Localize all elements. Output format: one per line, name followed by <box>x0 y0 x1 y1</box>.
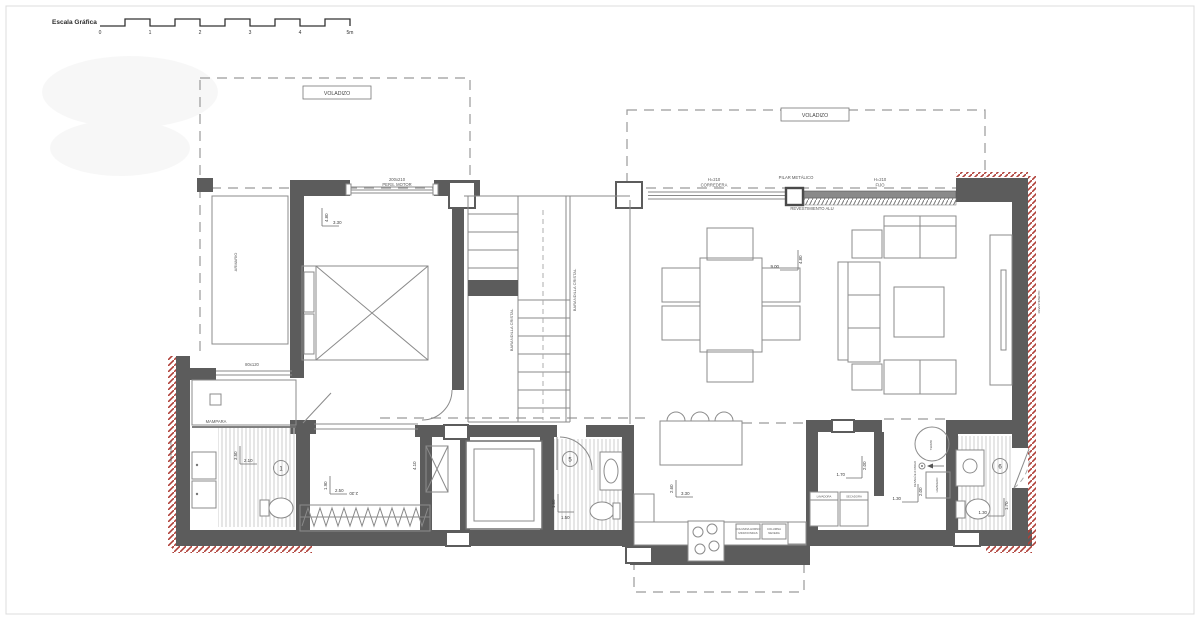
bath-guest-height-dim: 1.50 <box>551 499 556 508</box>
sink <box>192 481 216 508</box>
bedroom: ARMARIO 4.80 3.30 <box>212 196 452 429</box>
stair-landing <box>468 280 518 296</box>
living-area: 4.80 9.00 <box>770 216 1012 394</box>
voladizo-outline-left: VOLADIZO <box>197 78 470 356</box>
voladizo-label-right: VOLADIZO <box>802 113 828 119</box>
scale-tick-5: 5m <box>347 30 354 36</box>
bath-right-width-dim: 1.30 <box>978 510 987 515</box>
terrace-pillar <box>197 178 213 192</box>
living-width-dim: 9.00 <box>770 264 779 269</box>
washer: LAVADORA <box>810 492 838 526</box>
dining-area <box>662 228 800 382</box>
glass-railing-label-2: BARANDILLA CRISTAL <box>572 268 577 311</box>
utility-basin-label: LAVADERO <box>935 477 939 493</box>
bedroom-height-dim: 4.80 <box>324 213 329 222</box>
fixed-window-height-label: H=210 <box>874 177 887 182</box>
fixed-window: H=210 FIJO REVESTIMIENTO ALU <box>790 177 956 211</box>
water-heater: TERMO <box>915 427 949 461</box>
bath-window-size-label: 80x120 <box>245 362 259 367</box>
dressing-alt-dim: 2.30 <box>349 491 358 496</box>
dressing-height-dim: 1.90 <box>323 481 328 490</box>
bath-guest-width-dim: 1.50 <box>561 515 570 520</box>
laundry-height-dim: 2.00 <box>862 461 867 470</box>
bath-main-height-dim: 3.50 <box>233 451 238 460</box>
cladding-label-left: REVESTIMIENTO <box>169 440 173 464</box>
kitchen: 2.60 3.30 COLUMNA HORNO MICROONDAS COLUM… <box>634 412 806 561</box>
dining-chair <box>707 228 753 260</box>
watermark <box>42 56 218 176</box>
dining-chair <box>762 306 800 340</box>
dining-table <box>700 258 762 352</box>
glass-railing-label-1: BARANDILLA CRISTAL <box>509 308 514 351</box>
kitchen-width-dim: 3.30 <box>681 491 690 496</box>
bed <box>302 266 428 360</box>
kitchen-cabinet <box>634 494 654 522</box>
living-height-dim: 4.80 <box>798 255 803 264</box>
bedroom-window: 200x210 PERS. MOTOR <box>346 177 438 195</box>
fridge-column-label-2: NEVERA <box>768 531 780 535</box>
scale-bar-label: Escala Gráfica <box>52 19 97 26</box>
tv-cabinet <box>990 235 1012 385</box>
laundry-dimension: 2.00 1.70 <box>836 456 867 478</box>
scale-tick-4: 4 <box>299 30 302 36</box>
cooktop <box>688 521 724 561</box>
sink <box>192 452 216 479</box>
dryer: SECADORA <box>840 492 868 526</box>
sliding-window-type-label: CORREDERA <box>701 183 728 188</box>
dining-chair <box>707 350 753 382</box>
dining-chair <box>762 268 800 302</box>
scale-bar: Escala Gráfica 0 1 2 3 4 5m <box>52 19 353 36</box>
drain-symbol <box>919 463 944 469</box>
sink <box>600 452 622 490</box>
drain-label: DESAGÜE A PARED <box>913 461 917 487</box>
dining-chair <box>662 306 700 340</box>
wardrobe <box>300 505 430 531</box>
dressing-dimension: 1.90 2.50 2.30 <box>323 476 358 496</box>
voladizo-label-left: VOLADIZO <box>324 91 350 97</box>
coffee-table <box>894 287 944 337</box>
floor-plan-drawing: Escala Gráfica 0 1 2 3 4 5m VOLADIZO VOL… <box>0 0 1200 621</box>
kitchen-dimension: 2.60 3.30 <box>669 480 693 497</box>
toilet <box>260 498 293 518</box>
living-dimension: 4.80 9.00 <box>770 250 803 270</box>
kitchen-island <box>660 421 742 465</box>
cladding-label-right: REVESTIMIENTO <box>1037 290 1041 314</box>
laundry: LAVADORA SECADORA 2.00 1.70 <box>810 456 868 526</box>
bedroom-door-arc <box>422 390 452 420</box>
scale-tick-1: 1 <box>149 30 152 36</box>
steel-pillar-label: PILAR METÁLICO <box>779 175 814 180</box>
entry-door <box>1014 449 1030 488</box>
scale-bar-rule <box>100 19 350 26</box>
floor-plan-canvas: Escala Gráfica 0 1 2 3 4 5m VOLADIZO VOL… <box>0 0 1200 621</box>
shower-drain <box>210 394 221 405</box>
washer-label: LAVADORA <box>817 495 832 499</box>
vanity-sink <box>956 450 984 486</box>
scale-tick-0: 0 <box>99 30 102 36</box>
water-heater-label: TERMO <box>929 439 933 450</box>
utility-width-dim: 1.30 <box>892 496 901 501</box>
toilet <box>590 502 620 520</box>
laundry-width-dim: 1.70 <box>836 472 845 477</box>
sliding-window-height-label: H=210 <box>708 177 721 182</box>
hall-dim: 4.10 <box>412 461 417 470</box>
utility-dimension: 2.00 1.30 <box>892 484 923 502</box>
mampara-label: MAMPARA <box>206 419 227 424</box>
scale-tick-2: 2 <box>199 30 202 36</box>
dressing-width-dim: 2.50 <box>335 488 344 493</box>
bedroom-window-type-label: PERS. MOTOR <box>382 182 411 187</box>
bath-guest: 5 1.50 1.50 <box>551 437 622 530</box>
alu-cladding-label: REVESTIMIENTO ALU <box>790 206 833 211</box>
kitchen-height-dim: 2.60 <box>669 484 674 493</box>
oven-column-label-2: MICROONDAS <box>738 531 757 535</box>
dryer-label: SECADORA <box>846 495 862 499</box>
bath-main-width-dim: 2.10 <box>244 458 253 463</box>
bar-stools <box>667 412 733 421</box>
oven-column: COLUMNA HORNO MICROONDAS <box>735 524 761 539</box>
fridge-column: COLUMNA NEVERA <box>762 524 786 539</box>
fixed-window-type-label: FIJO <box>875 183 885 188</box>
kitchen-pillar <box>788 522 806 544</box>
stair-treads-lower <box>518 300 570 408</box>
wardrobe-cabinet <box>212 196 288 344</box>
bedroom-dimension: 4.80 3.30 <box>322 208 342 226</box>
utility-height-dim: 2.00 <box>918 487 923 496</box>
bedroom-width-dim: 3.30 <box>333 220 342 225</box>
dining-chair <box>662 268 700 302</box>
stair-treads-upper <box>468 214 518 268</box>
toilet <box>956 499 990 519</box>
bath-right-height-dim: 1.70 <box>1004 501 1009 510</box>
armario-label: ARMARIO <box>233 253 238 272</box>
staircase: BARANDILLA CRISTAL BARANDILLA CRISTAL <box>464 196 630 424</box>
bath-window: 80x120 <box>216 362 292 375</box>
bath-main-door <box>303 393 331 423</box>
scale-tick-3: 3 <box>249 30 252 36</box>
sofa-set <box>838 216 956 394</box>
elevator <box>466 441 542 529</box>
utility-room: TERMO LAVADERO DESAGÜE A PARED 2.00 1.30 <box>892 427 950 502</box>
